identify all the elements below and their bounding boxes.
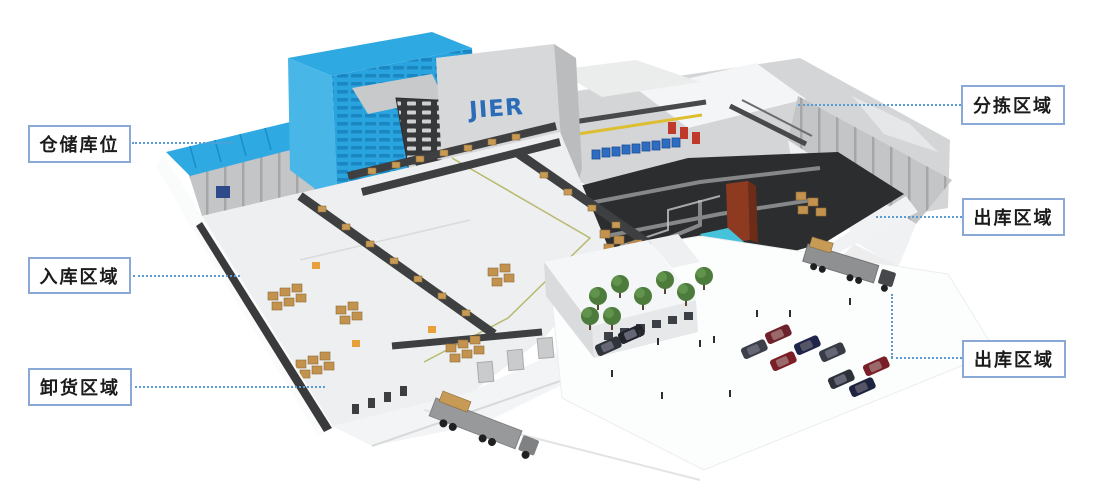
warehouse-diagram: JIER — [0, 0, 1107, 497]
callout-outbound-area-lower: 出库区域 — [962, 340, 1066, 378]
leader-outbound-upper — [876, 216, 962, 218]
callout-label: 卸货区域 — [40, 374, 120, 400]
callout-sorting-area: 分拣区域 — [961, 85, 1065, 125]
leader-unloading-area — [135, 386, 325, 388]
leader-outbound-lower-vert — [891, 294, 893, 358]
leader-inbound-area — [133, 275, 240, 277]
callout-unloading-area: 卸货区域 — [28, 368, 132, 406]
facility-illustration: JIER — [0, 0, 1107, 497]
callout-label: 分拣区域 — [973, 92, 1053, 118]
callout-outbound-area-upper: 出库区域 — [962, 198, 1065, 236]
callout-label: 仓储库位 — [40, 131, 120, 157]
callout-inbound-area: 入库区域 — [28, 257, 131, 294]
callout-label: 出库区域 — [974, 204, 1054, 230]
callout-label: 入库区域 — [40, 263, 120, 289]
leader-storage-location — [132, 142, 232, 144]
leader-sorting-area — [798, 104, 961, 106]
callout-label: 出库区域 — [974, 346, 1054, 372]
callout-storage-location: 仓储库位 — [28, 125, 131, 163]
leader-outbound-lower — [891, 357, 962, 359]
jier-logo: JIER — [466, 94, 524, 124]
